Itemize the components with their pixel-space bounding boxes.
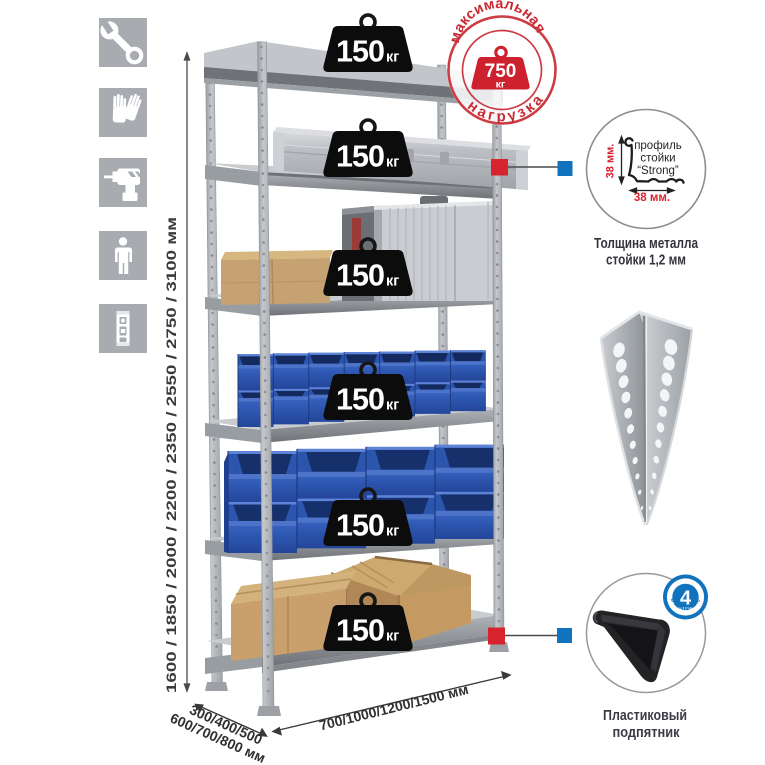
svg-text:150: 150 bbox=[336, 509, 384, 543]
svg-text:кг: кг bbox=[386, 398, 399, 414]
svg-text:подпятник: подпятник bbox=[613, 724, 680, 741]
svg-text:кг: кг bbox=[386, 524, 399, 540]
svg-text:кг: кг bbox=[386, 155, 399, 171]
svg-text:стойки 1,2 мм: стойки 1,2 мм bbox=[606, 253, 686, 269]
svg-text:Пластиковый: Пластиковый bbox=[603, 707, 687, 724]
svg-text:150: 150 bbox=[336, 383, 384, 417]
svg-text:кг: кг bbox=[386, 629, 399, 645]
svg-text:150: 150 bbox=[336, 140, 384, 174]
svg-text:1600 / 1850 / 2000 / 2200 / 23: 1600 / 1850 / 2000 / 2200 / 2350 / 2550 … bbox=[164, 217, 179, 693]
svg-text:кг: кг bbox=[386, 50, 399, 66]
svg-text:кг: кг bbox=[386, 274, 399, 290]
svg-text:стойки: стойки bbox=[640, 153, 675, 165]
svg-text:150: 150 bbox=[336, 614, 384, 648]
svg-text:150: 150 bbox=[336, 259, 384, 293]
svg-text:“Strong”: “Strong” bbox=[637, 165, 679, 177]
svg-text:профиль: профиль bbox=[634, 140, 682, 152]
svg-text:кг: кг bbox=[496, 79, 506, 91]
svg-text:Толщина металла: Толщина металла bbox=[594, 236, 699, 252]
svg-text:38 мм.: 38 мм. bbox=[605, 144, 617, 179]
svg-text:38 мм.: 38 мм. bbox=[634, 192, 670, 204]
svg-text:150: 150 bbox=[336, 35, 384, 69]
